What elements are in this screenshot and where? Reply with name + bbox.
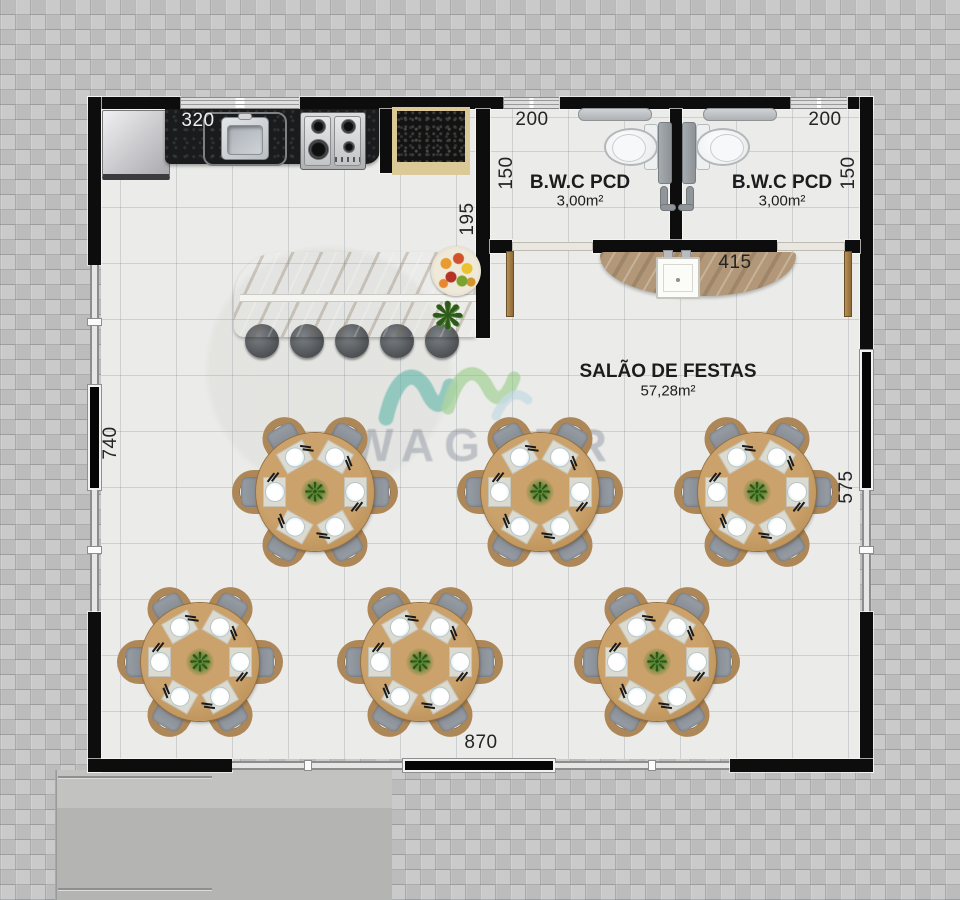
dim-bottom-wall: 870 xyxy=(464,732,497,754)
bwc2-area: 3,00m² xyxy=(759,193,806,210)
dim-kitchen-counter: 320 xyxy=(181,110,214,132)
centerpiece-plant-icon: ❊ xyxy=(301,478,329,506)
dim-bwc1-depth: 150 xyxy=(496,156,518,189)
centerpiece-plant-icon: ❊ xyxy=(526,478,554,506)
dining-table: ❊ xyxy=(115,577,285,747)
hall-label: SALÃO DE FESTAS xyxy=(580,361,757,383)
dining-table: ❊ xyxy=(230,407,400,577)
dim-bwc1-width: 200 xyxy=(515,109,548,131)
dim-bwc2-depth: 150 xyxy=(838,156,860,189)
dining-table: ❊ xyxy=(572,577,742,747)
bwc1-label: B.W.C PCD xyxy=(530,172,630,194)
centerpiece-plant-icon: ❊ xyxy=(406,648,434,676)
centerpiece-plant-icon: ❊ xyxy=(743,478,771,506)
dim-bwc2-width: 200 xyxy=(808,109,841,131)
centerpiece-plant-icon: ❊ xyxy=(186,648,214,676)
centerpiece-plant-icon: ❊ xyxy=(643,648,671,676)
dim-vanity-wall: 415 xyxy=(718,252,751,274)
dining-area: ❊ xyxy=(0,0,960,900)
hall-area: 57,28m² xyxy=(640,383,695,400)
bwc1-area: 3,00m² xyxy=(557,193,604,210)
dining-table: ❊ xyxy=(335,577,505,747)
dining-table: ❊ xyxy=(455,407,625,577)
floor-plan: WAGNER xyxy=(0,0,960,900)
bwc2-label: B.W.C PCD xyxy=(732,172,832,194)
dim-left-wall: 740 xyxy=(100,426,122,459)
dining-table: ❊ xyxy=(672,407,842,577)
dim-right-wall: 575 xyxy=(836,470,858,503)
dim-kitchen-wall: 195 xyxy=(457,202,479,235)
